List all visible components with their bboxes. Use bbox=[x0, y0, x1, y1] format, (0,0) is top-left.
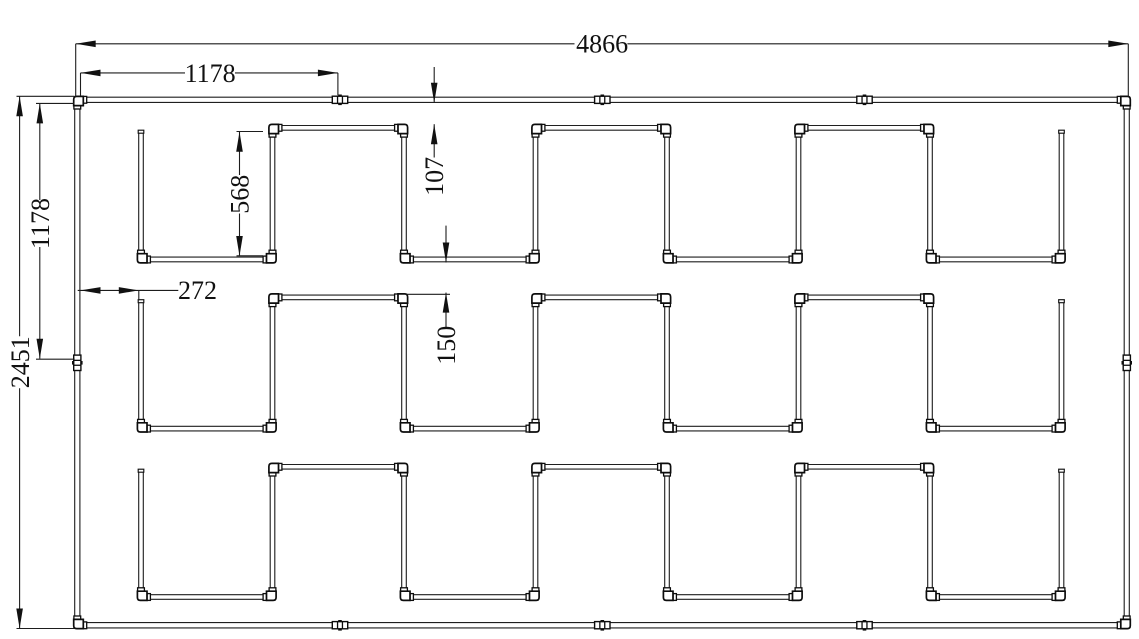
svg-text:4866: 4866 bbox=[576, 30, 628, 59]
svg-text:1178: 1178 bbox=[185, 59, 236, 88]
svg-text:272: 272 bbox=[178, 276, 217, 305]
svg-text:107: 107 bbox=[420, 157, 449, 196]
svg-text:568: 568 bbox=[226, 175, 255, 214]
svg-text:2451: 2451 bbox=[6, 336, 35, 388]
svg-text:1178: 1178 bbox=[26, 198, 55, 249]
svg-text:150: 150 bbox=[432, 326, 461, 365]
